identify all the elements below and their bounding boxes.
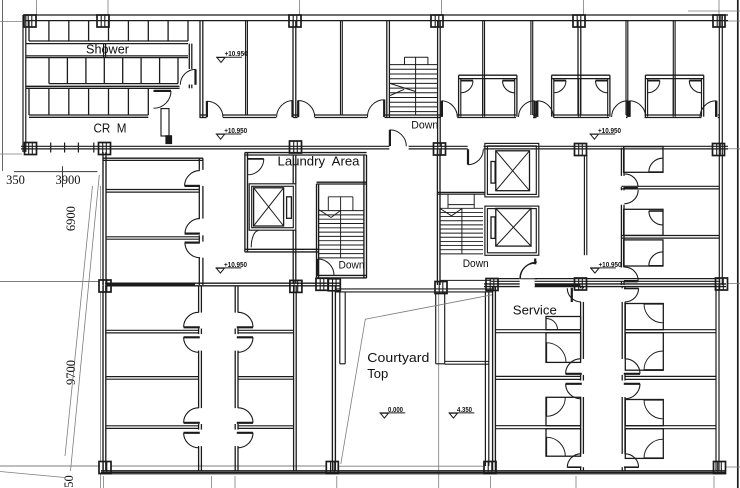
svg-text:Down: Down [339, 259, 365, 271]
svg-text:6900: 6900 [64, 206, 78, 231]
svg-text:CR M: CR M [94, 121, 127, 135]
svg-text:Laundry Area: Laundry Area [278, 155, 360, 169]
svg-text:9700: 9700 [64, 360, 78, 385]
svg-text:50: 50 [62, 475, 76, 488]
svg-text:Top: Top [367, 366, 388, 381]
svg-text:Courtyard: Courtyard [367, 350, 429, 365]
svg-text:Shower: Shower [86, 43, 129, 57]
svg-text:Down: Down [411, 120, 438, 132]
svg-text:Service: Service [513, 304, 557, 318]
svg-text:3900: 3900 [56, 173, 81, 187]
svg-text:Down: Down [463, 258, 489, 270]
svg-text:350: 350 [6, 173, 25, 187]
